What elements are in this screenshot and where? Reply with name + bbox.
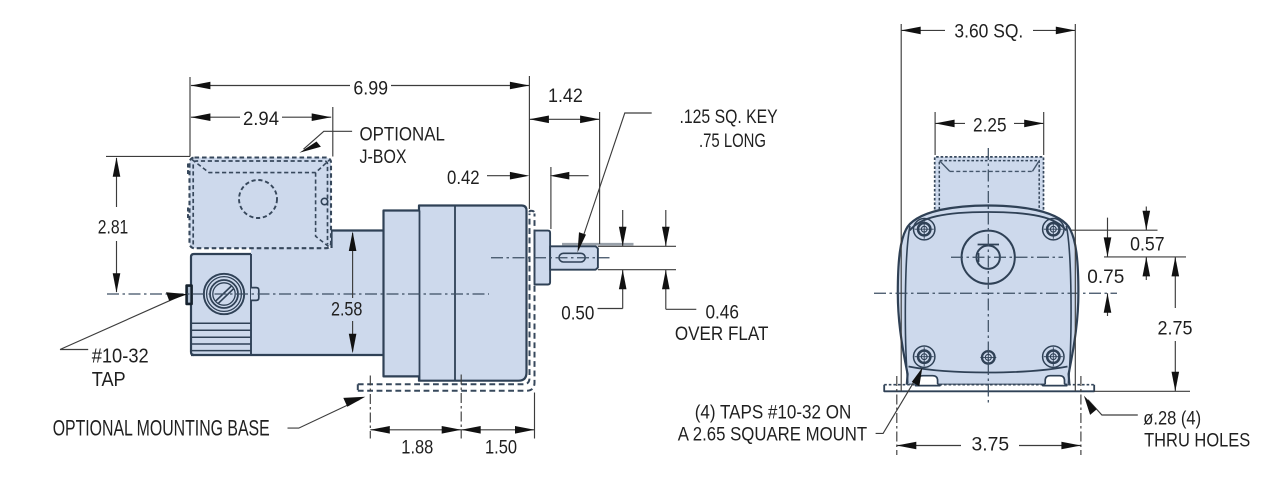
svg-text:.75 LONG: .75 LONG (699, 131, 766, 152)
svg-text:OPTIONAL: OPTIONAL (360, 124, 445, 145)
svg-text:OVER FLAT: OVER FLAT (675, 324, 769, 345)
svg-text:0.42: 0.42 (447, 168, 480, 189)
svg-text:2.81: 2.81 (98, 218, 129, 239)
svg-text:0.75: 0.75 (1087, 267, 1124, 288)
svg-text:.125 SQ. KEY: .125 SQ. KEY (680, 107, 778, 128)
svg-text:#10-32: #10-32 (92, 345, 149, 367)
svg-text:2.75: 2.75 (1158, 318, 1193, 339)
svg-text:0.46: 0.46 (705, 302, 739, 323)
svg-text:A 2.65 SQUARE MOUNT: A 2.65 SQUARE MOUNT (678, 425, 868, 446)
svg-text:0.50: 0.50 (561, 303, 594, 324)
svg-text:ø.28 (4): ø.28 (4) (1143, 409, 1201, 430)
svg-text:3.60 SQ.: 3.60 SQ. (954, 21, 1023, 42)
svg-text:OPTIONAL MOUNTING BASE: OPTIONAL MOUNTING BASE (53, 416, 270, 441)
svg-text:2.94: 2.94 (243, 109, 279, 130)
svg-text:2.25: 2.25 (973, 115, 1007, 136)
svg-text:THRU HOLES: THRU HOLES (1144, 430, 1250, 451)
svg-text:3.75: 3.75 (972, 435, 1010, 456)
svg-text:J-BOX: J-BOX (360, 147, 407, 168)
svg-text:1.50: 1.50 (485, 438, 517, 459)
svg-text:(4) TAPS #10-32 ON: (4) TAPS #10-32 ON (695, 402, 852, 423)
svg-text:TAP: TAP (92, 369, 126, 391)
svg-text:1.42: 1.42 (548, 86, 583, 107)
svg-text:0.57: 0.57 (1130, 235, 1165, 256)
svg-text:2.58: 2.58 (331, 300, 363, 321)
svg-text:1.88: 1.88 (401, 438, 433, 459)
svg-text:6.99: 6.99 (353, 79, 388, 100)
